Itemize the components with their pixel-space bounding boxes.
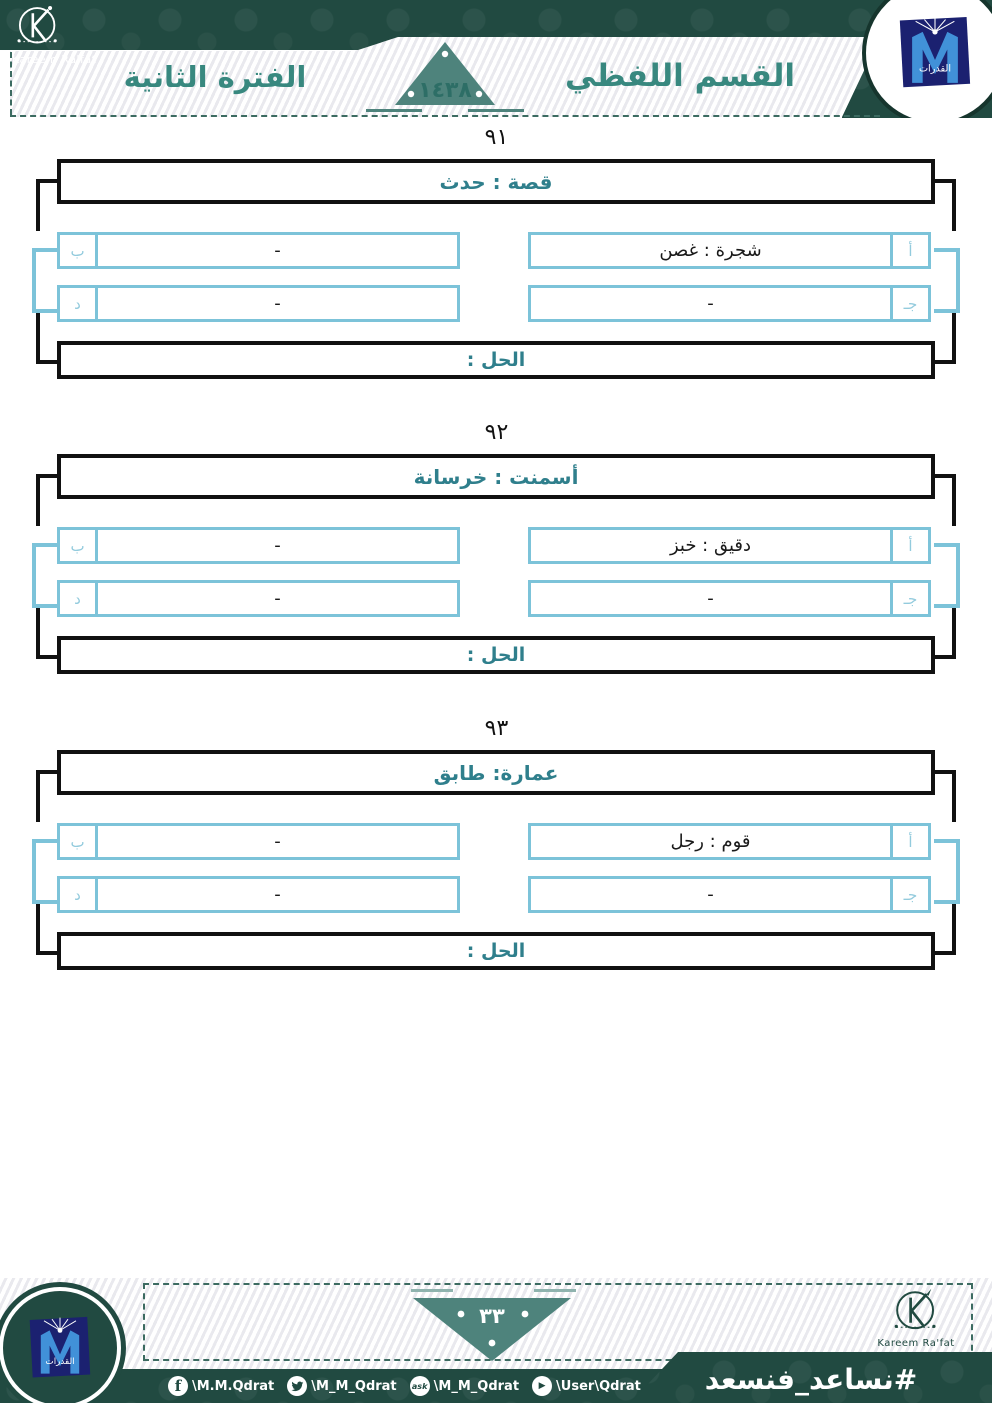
worksheet-page: القسم اللفظي الفترة الثانية ١٤٣٨ Kareem … bbox=[0, 0, 992, 1403]
option-c-text: - bbox=[531, 288, 890, 319]
footer-hashtag-panel: #نساعد_فنسعد bbox=[630, 1352, 992, 1403]
option-c: - جـ bbox=[528, 876, 931, 913]
logo-ring bbox=[0, 1287, 121, 1403]
question-block-91: ٩١ قصة : حدث شجرة : غصن أ ب - - جـ د - ا… bbox=[26, 125, 967, 381]
twitter-icon bbox=[287, 1376, 307, 1396]
brand-name: Kareem Ra'fat bbox=[12, 53, 132, 66]
option-b-text: - bbox=[98, 235, 457, 266]
question-title: عمارة: طابق bbox=[434, 761, 559, 785]
youtube-handle: \User\Qdrat bbox=[556, 1379, 641, 1394]
option-a-text: قوم : رجل bbox=[531, 826, 890, 857]
option-a: قوم : رجل أ bbox=[528, 823, 931, 860]
solution-box: الحل : bbox=[57, 341, 935, 379]
option-a-label: أ bbox=[890, 826, 928, 857]
option-d: د - bbox=[57, 876, 460, 913]
question-block-93: ٩٣ عمارة: طابق قوم : رجل أ ب - - جـ د - … bbox=[26, 716, 967, 972]
brand-logo-top-left: Kareem Ra'fat bbox=[12, 2, 132, 66]
option-c: - جـ bbox=[528, 580, 931, 617]
solution-label: الحل : bbox=[467, 349, 526, 371]
qudrat-logo-top-right: القدرات bbox=[862, 0, 992, 118]
page-number-triangle: ٣٣ bbox=[413, 1290, 571, 1362]
qudrat-logo-text: القدرات bbox=[919, 63, 951, 74]
option-d: د - bbox=[57, 285, 460, 322]
question-title-box: قصة : حدث bbox=[57, 159, 935, 204]
option-a-text: شجرة : غصن bbox=[531, 235, 890, 266]
option-b-label: ب bbox=[60, 826, 98, 857]
option-b-text: - bbox=[98, 530, 457, 561]
youtube-icon: ▶ bbox=[532, 1376, 552, 1396]
header-dashed-line-bottom bbox=[10, 115, 880, 117]
option-d-text: - bbox=[98, 288, 457, 319]
option-b-label: ب bbox=[60, 530, 98, 561]
page-header: القسم اللفظي الفترة الثانية ١٤٣٨ Kareem … bbox=[0, 0, 992, 118]
k-logo-icon bbox=[12, 2, 64, 52]
social-facebook: f \M.M.Qdrat bbox=[168, 1376, 274, 1396]
question-number: ٩١ bbox=[26, 125, 967, 150]
options-connector-left bbox=[32, 248, 58, 313]
solution-label: الحل : bbox=[467, 940, 526, 962]
social-links: f \M.M.Qdrat \M_M_Qdrat ask \M_M_Qdrat ▶… bbox=[168, 1373, 641, 1399]
option-d-label: د bbox=[60, 583, 98, 614]
option-c-label: جـ bbox=[890, 288, 928, 319]
option-c-text: - bbox=[531, 583, 890, 614]
options-connector-right bbox=[934, 839, 960, 904]
option-d-label: د bbox=[60, 879, 98, 910]
facebook-icon: f bbox=[168, 1376, 188, 1396]
option-c-label: جـ bbox=[890, 879, 928, 910]
option-a-text: دقيق : خبز bbox=[531, 530, 890, 561]
option-b: ب - bbox=[57, 823, 460, 860]
option-c-label: جـ bbox=[890, 583, 928, 614]
social-youtube: ▶ \User\Qdrat bbox=[532, 1376, 641, 1396]
social-twitter: \M_M_Qdrat bbox=[287, 1376, 396, 1396]
k-logo-icon bbox=[888, 1286, 944, 1338]
options-connector-right bbox=[934, 248, 960, 313]
question-title-box: أسمنت : خرسانة bbox=[57, 454, 935, 499]
question-title: أسمنت : خرسانة bbox=[414, 465, 579, 489]
option-c: - جـ bbox=[528, 285, 931, 322]
option-b-text: - bbox=[98, 826, 457, 857]
page-number: ٣٣ bbox=[479, 1304, 505, 1328]
option-a: دقيق : خبز أ bbox=[528, 527, 931, 564]
option-a: شجرة : غصن أ bbox=[528, 232, 931, 269]
solution-box: الحل : bbox=[57, 932, 935, 970]
section-title: القسم اللفظي bbox=[505, 58, 855, 94]
option-d-label: د bbox=[60, 288, 98, 319]
question-title-box: عمارة: طابق bbox=[57, 750, 935, 795]
question-title: قصة : حدث bbox=[440, 170, 553, 194]
brand-logo-footer: Kareem Ra'fat bbox=[856, 1286, 976, 1349]
ask-icon: ask bbox=[410, 1376, 430, 1396]
social-ask: ask \M_M_Qdrat bbox=[410, 1376, 519, 1396]
option-a-label: أ bbox=[890, 235, 928, 266]
ask-handle: \M_M_Qdrat bbox=[434, 1379, 519, 1394]
option-d: د - bbox=[57, 580, 460, 617]
triangle-accent-line-left bbox=[366, 109, 422, 112]
option-a-label: أ bbox=[890, 530, 928, 561]
option-b: ب - bbox=[57, 527, 460, 564]
solution-label: الحل : bbox=[467, 644, 526, 666]
hashtag-text: #نساعد_فنسعد bbox=[705, 1359, 918, 1396]
option-b: ب - bbox=[57, 232, 460, 269]
option-c-text: - bbox=[531, 879, 890, 910]
question-block-92: ٩٢ أسمنت : خرسانة دقيق : خبز أ ب - - جـ … bbox=[26, 420, 967, 676]
brand-name: Kareem Ra'fat bbox=[856, 1338, 976, 1349]
options-connector-left bbox=[32, 543, 58, 608]
option-d-text: - bbox=[98, 583, 457, 614]
year-triangle: ١٤٣٨ bbox=[395, 42, 495, 106]
page-footer: ٣٣ #نساعد_فنسعد f \M.M.Qdrat \M_M_Qdrat … bbox=[0, 1278, 992, 1403]
year-text: ١٤٣٨ bbox=[418, 78, 472, 103]
facebook-handle: \M.M.Qdrat bbox=[192, 1379, 274, 1394]
question-number: ٩٢ bbox=[26, 420, 967, 445]
solution-box: الحل : bbox=[57, 636, 935, 674]
triangle-accent-line-right bbox=[468, 109, 524, 112]
twitter-handle: \M_M_Qdrat bbox=[311, 1379, 396, 1394]
question-number: ٩٣ bbox=[26, 716, 967, 741]
option-b-label: ب bbox=[60, 235, 98, 266]
options-connector-right bbox=[934, 543, 960, 608]
options-connector-left bbox=[32, 839, 58, 904]
qudrat-book-icon: القدرات bbox=[891, 9, 979, 97]
option-d-text: - bbox=[98, 879, 457, 910]
